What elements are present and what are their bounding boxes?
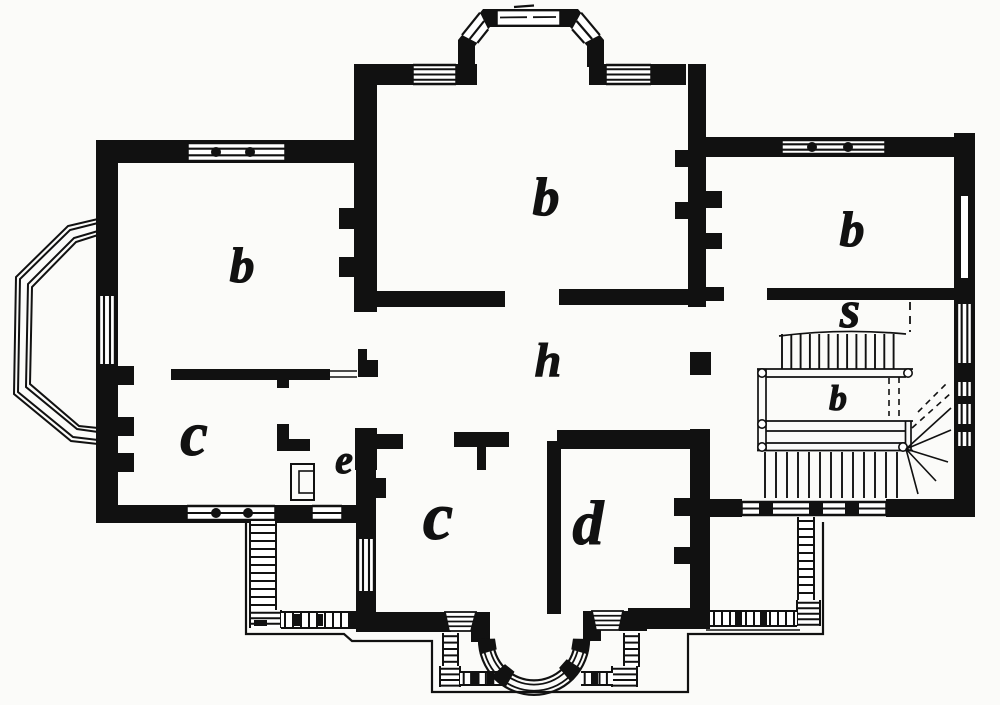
svg-text:d: d	[573, 490, 605, 558]
svg-text:b: b	[230, 237, 255, 293]
svg-text:c: c	[180, 401, 208, 469]
svg-text:b: b	[829, 378, 847, 418]
svg-text:h: h	[535, 334, 562, 387]
svg-text:b: b	[533, 167, 560, 227]
svg-text:s: s	[839, 282, 860, 339]
svg-text:e: e	[335, 437, 353, 482]
svg-text:c: c	[423, 478, 453, 554]
svg-text:b: b	[840, 201, 865, 257]
